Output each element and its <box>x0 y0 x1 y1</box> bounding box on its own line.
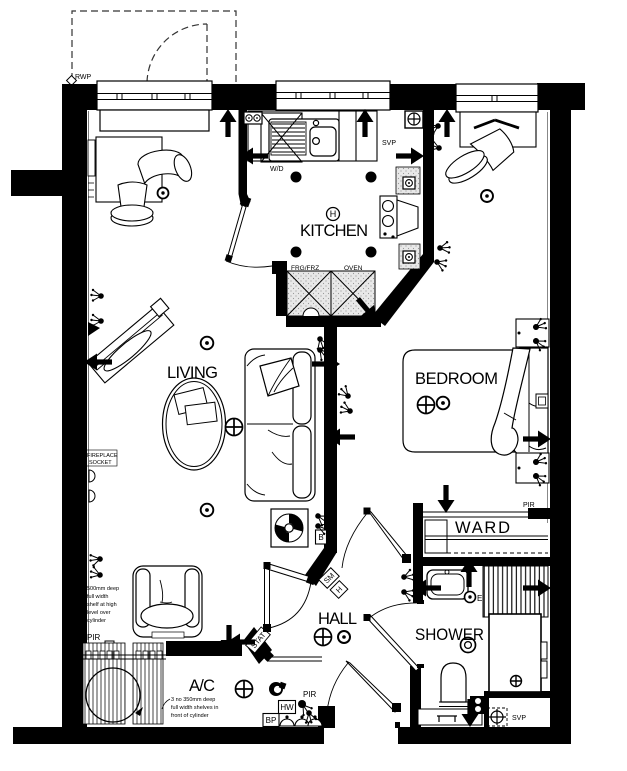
svg-text:SVP: SVP <box>382 140 396 147</box>
svg-text:full width: full width <box>87 594 108 600</box>
svg-text:W/D: W/D <box>270 166 284 173</box>
svg-text:E: E <box>477 594 482 603</box>
svg-text:HW: HW <box>280 703 294 712</box>
svg-text:KITCHEN: KITCHEN <box>300 222 368 240</box>
svg-text:cylinder: cylinder <box>87 618 106 624</box>
svg-text:3 no 350mm deep: 3 no 350mm deep <box>171 697 215 703</box>
svg-text:BP: BP <box>266 716 277 725</box>
svg-text:WARD: WARD <box>455 519 510 537</box>
svg-text:FIREPLACE: FIREPLACE <box>87 453 118 459</box>
svg-text:PIR: PIR <box>303 690 317 699</box>
svg-text:full width shelves in: full width shelves in <box>171 705 218 711</box>
svg-text:H: H <box>330 209 337 219</box>
svg-text:LIVING: LIVING <box>167 364 218 382</box>
svg-text:SOCKET: SOCKET <box>89 460 112 466</box>
svg-text:HALL: HALL <box>318 610 357 628</box>
svg-text:BEDROOM: BEDROOM <box>415 370 498 388</box>
svg-text:level over: level over <box>87 610 111 616</box>
svg-text:PIR: PIR <box>523 502 535 509</box>
svg-text:OVEN: OVEN <box>344 265 363 272</box>
svg-text:RWP: RWP <box>75 74 92 81</box>
svg-text:shelf at high: shelf at high <box>87 602 117 608</box>
svg-text:SHOWER: SHOWER <box>415 626 484 644</box>
svg-text:FRG/FRZ: FRG/FRZ <box>291 265 319 272</box>
svg-text:500mm deep: 500mm deep <box>87 586 119 592</box>
svg-text:front of cylinder: front of cylinder <box>171 713 209 719</box>
svg-text:B: B <box>318 533 323 542</box>
svg-text:A/C: A/C <box>189 677 215 695</box>
svg-text:PIR: PIR <box>87 633 101 642</box>
svg-text:SVP: SVP <box>512 715 526 722</box>
